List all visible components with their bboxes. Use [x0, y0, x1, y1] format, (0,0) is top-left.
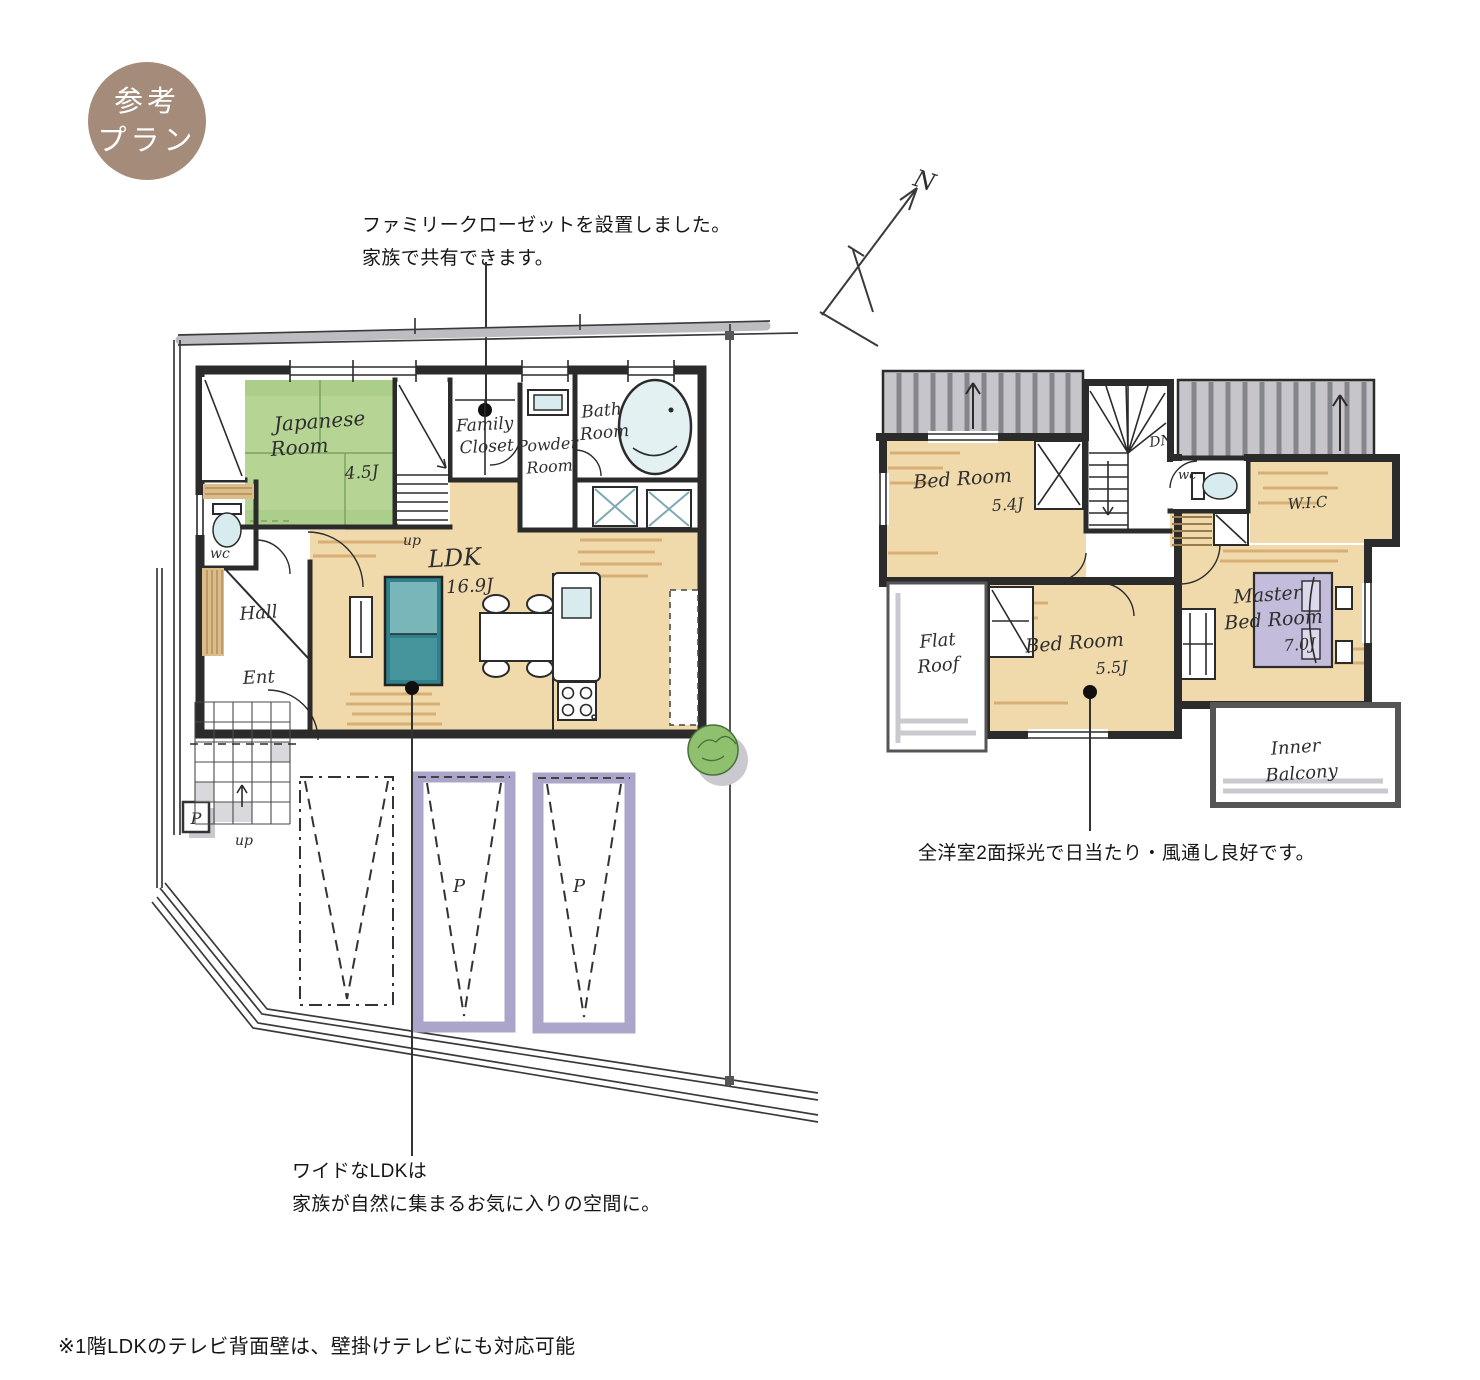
japanese-room-size: 4.5J: [343, 462, 380, 484]
parking-stall-2-label: P: [572, 876, 586, 897]
japanese-room-label2: Room: [269, 433, 330, 461]
parking-stall-dashed: [300, 777, 393, 1005]
flat-roof: Flat Roof: [888, 583, 986, 751]
inner-balcony-label1: Inner: [1269, 735, 1322, 760]
badge-line2: プラン: [97, 121, 196, 160]
north-arrow-shaft: [822, 188, 917, 315]
hall-ent: Hall Ent: [202, 568, 308, 689]
annotation-family-closet: ファミリークローゼットを設置しました。 家族で共有できます。: [362, 210, 731, 275]
powder-room-label2: Room: [525, 455, 574, 477]
bed-room-b-size: 5.5J: [1095, 657, 1130, 678]
master-size: 7.0J: [1283, 634, 1318, 655]
bath-room-label1: Bath: [580, 399, 623, 423]
floor-plan-2f: DN wc W.I.C Bed Room 5.4J Flat Roof Bed …: [868, 353, 1416, 853]
sofa: [385, 577, 442, 685]
parking-stall-1-label: P: [452, 876, 466, 897]
powder-room-label1: Powder: [516, 433, 580, 456]
annotation-ldk: ワイドなLDKは 家族が自然に集まるお気に入りの空間に。: [292, 1156, 661, 1221]
footnote-text: ※1階LDKのテレビ背面壁は、壁掛けテレビにも対応可能: [58, 1330, 576, 1364]
roof-left: [883, 371, 1083, 435]
north-arrow-tick: [848, 246, 864, 256]
wc-2f-label: wc: [1178, 468, 1197, 483]
family-closet-label1: Family: [455, 413, 515, 436]
footnote: ※1階LDKのテレビ背面壁は、壁掛けテレビにも対応可能: [58, 1330, 576, 1364]
stairs-2f: DN: [1089, 384, 1175, 530]
roof-right: [1178, 380, 1374, 458]
porch-up-label: up: [235, 833, 253, 849]
bed-room-a-size: 5.4J: [991, 494, 1026, 515]
kitchen: [553, 573, 600, 720]
annotation-daylight-line: 全洋室2面採光で日当たり・風通し良好です。: [918, 838, 1315, 871]
reference-plan-badge: 参考 プラン: [88, 62, 206, 180]
ent-label: Ent: [241, 666, 276, 689]
dining-table: [480, 613, 556, 661]
annotation-family-closet-line2: 家族で共有できます。: [362, 243, 731, 276]
stairs-up-label: up: [403, 533, 421, 549]
flat-roof-label2: Roof: [916, 653, 964, 678]
wc-2f: wc: [1173, 461, 1246, 509]
hall-label: Hall: [238, 601, 279, 625]
family-closet: Family Closet: [455, 400, 515, 475]
wc-1f-label: wc: [210, 546, 230, 562]
parking-stall-2: P: [538, 778, 630, 1028]
annotation-ldk-line2: 家族が自然に集まるお気に入りの空間に。: [292, 1189, 661, 1222]
stairs-1f: up: [397, 382, 448, 549]
flat-roof-label1: Flat: [918, 629, 958, 653]
wic-label: W.I.C: [1287, 493, 1328, 514]
tv-board: [350, 597, 372, 657]
pantry: [670, 590, 698, 725]
powder-room: Powder Room: [516, 390, 580, 478]
toilet-1f: [213, 513, 241, 547]
ldk-size: 16.9J: [446, 575, 496, 599]
floor-plan-1f: P: [150, 300, 830, 1170]
laundry-fixtures: [593, 487, 691, 528]
parking-stall-1: P: [418, 777, 510, 1027]
parking-sign: P: [183, 802, 215, 838]
annotation-family-closet-line1: ファミリークローゼットを設置しました。: [362, 210, 731, 243]
family-closet-label2: Closet: [459, 436, 514, 459]
ldk-label: LDK: [426, 543, 484, 574]
toilet-2f: [1203, 473, 1237, 499]
oshiire-closet: [202, 377, 245, 480]
parking-sign-label: P: [190, 809, 202, 828]
badge-line1: 参考: [114, 82, 180, 121]
annotation-ldk-line1: ワイドなLDKは: [292, 1156, 661, 1189]
tree: [688, 725, 748, 786]
annotation-daylight: 全洋室2面採光で日当たり・風通し良好です。: [918, 838, 1315, 871]
inner-balcony: Inner Balcony: [1213, 705, 1398, 805]
